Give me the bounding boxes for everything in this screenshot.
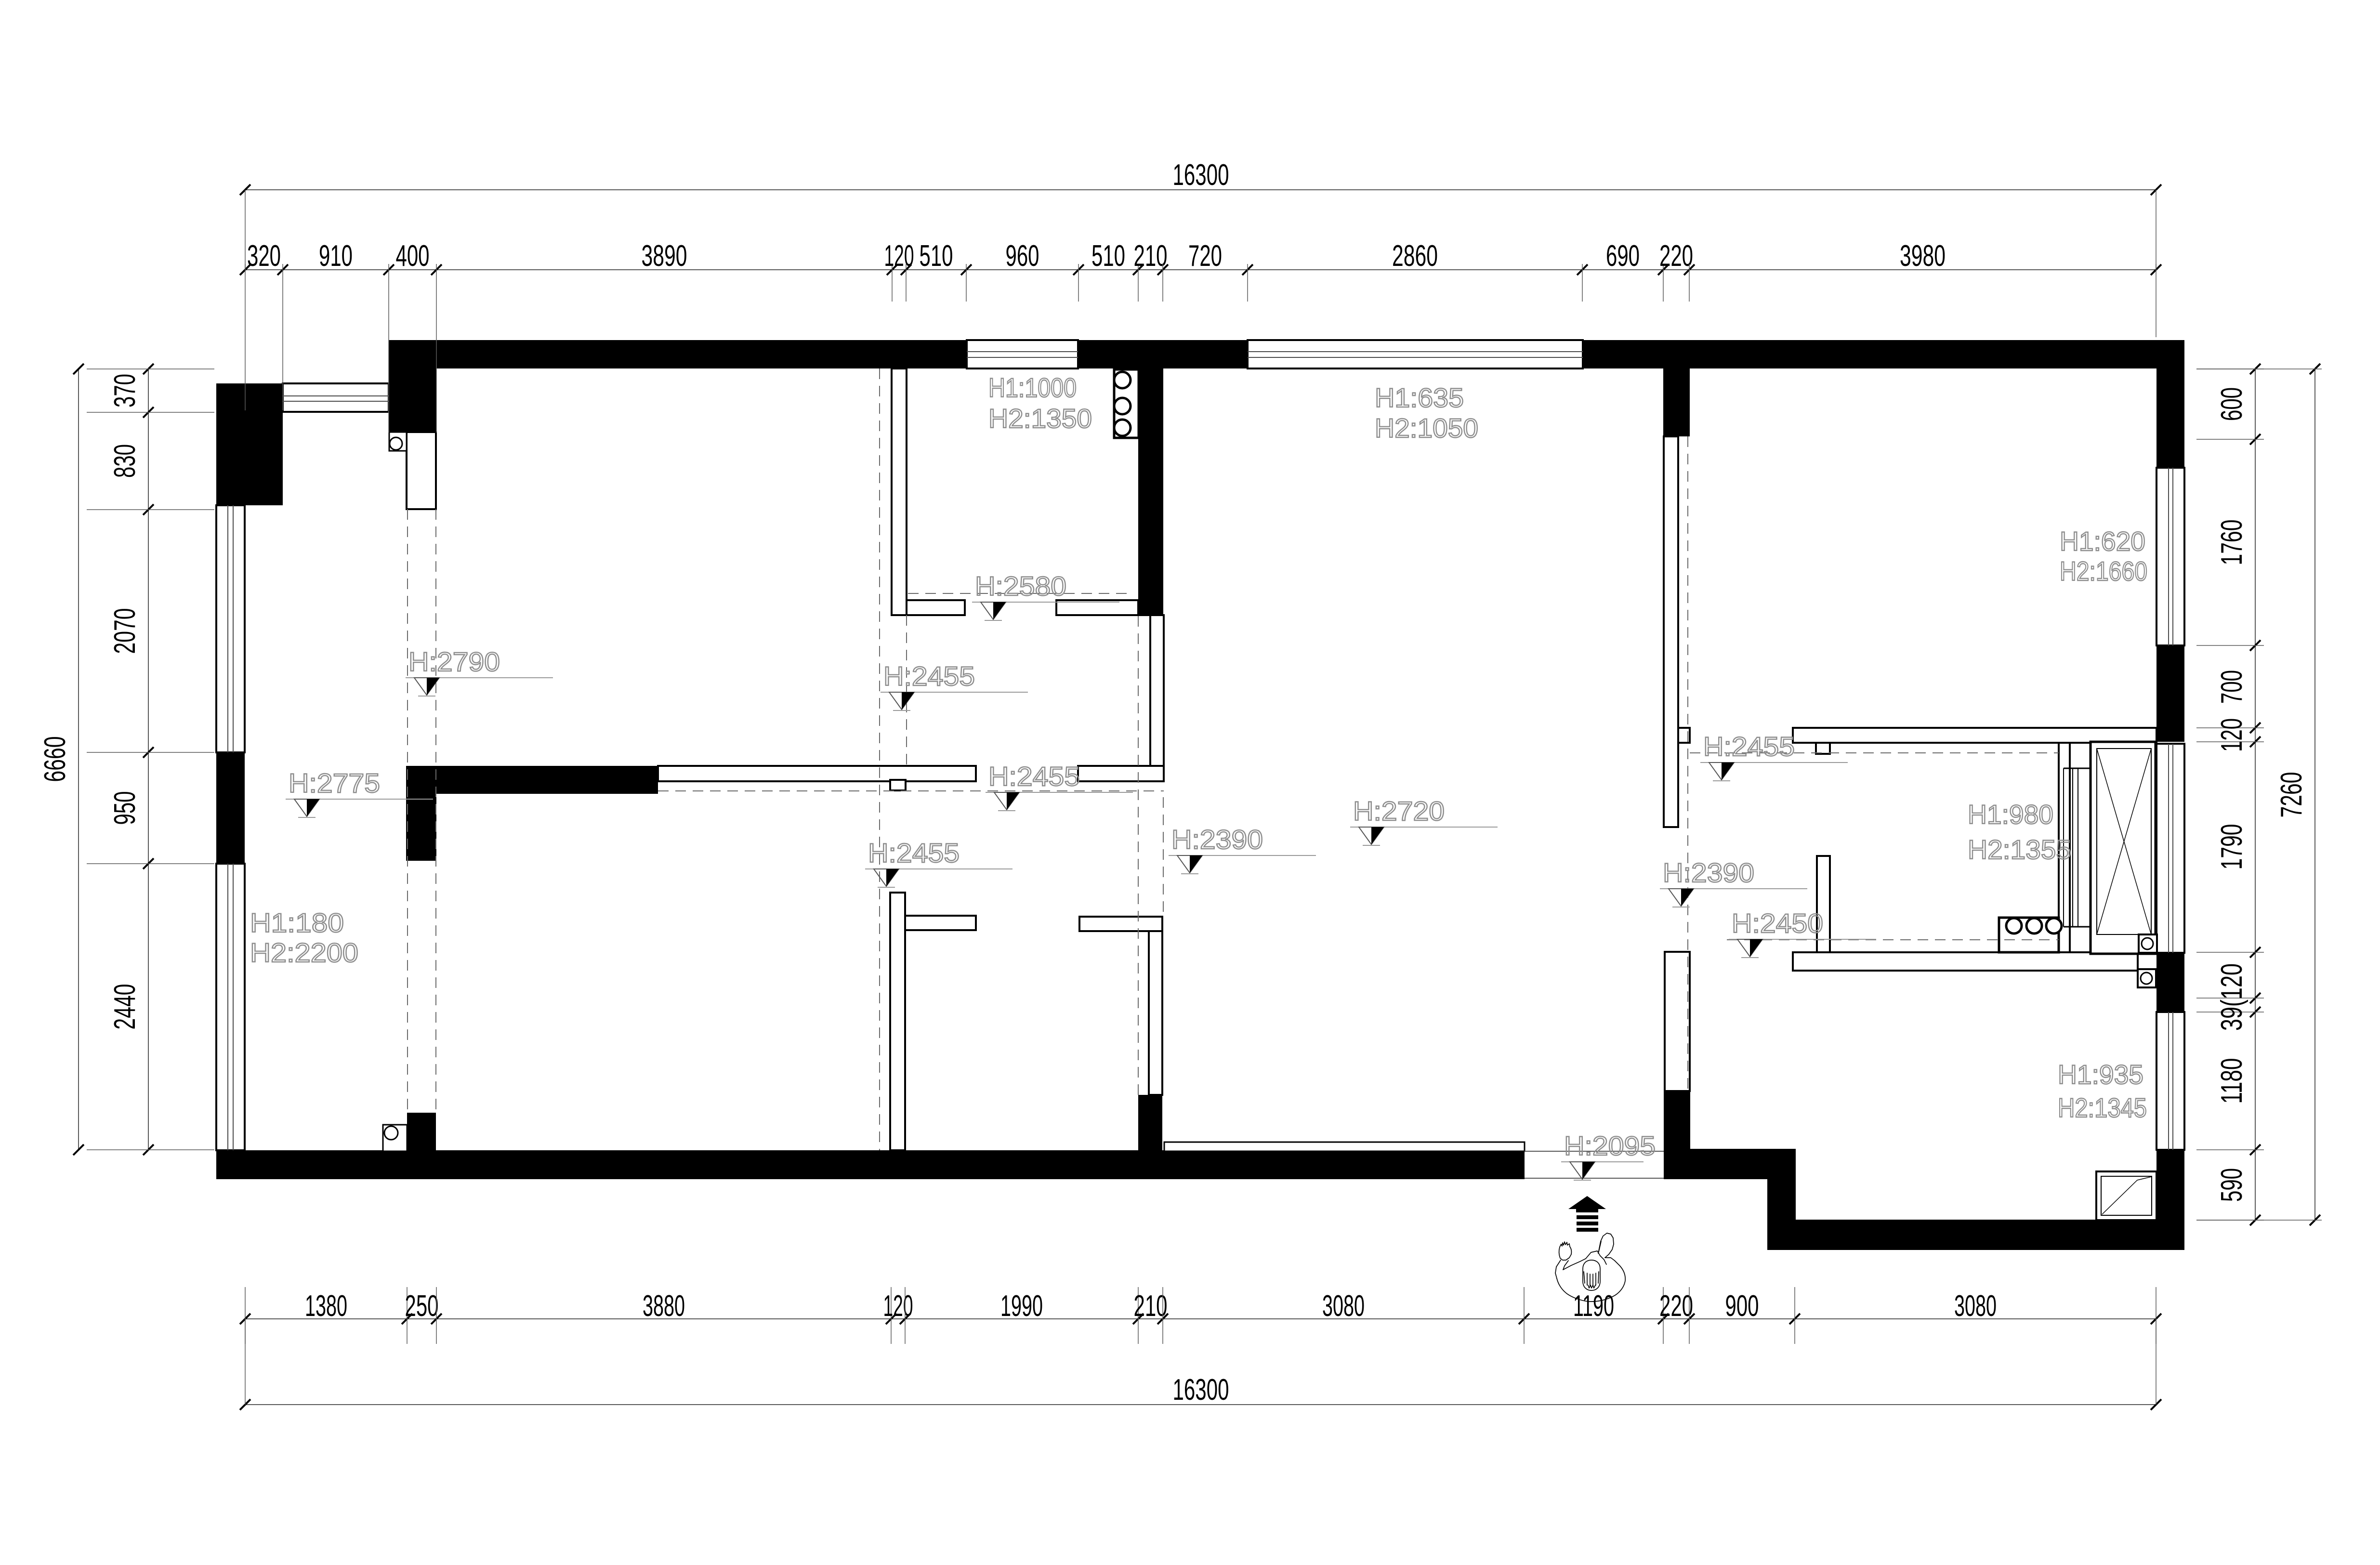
svg-text:H1:980: H1:980: [1968, 799, 2053, 829]
svg-text:1990: 1990: [1000, 1289, 1043, 1323]
svg-text:1760: 1760: [2215, 520, 2249, 566]
svg-text:H:2790: H:2790: [408, 646, 500, 677]
svg-text:H2:1350: H2:1350: [988, 403, 1092, 434]
svg-text:3080: 3080: [1954, 1289, 1997, 1323]
svg-text:910: 910: [319, 239, 353, 273]
svg-text:H:2095: H:2095: [1564, 1131, 1656, 1161]
svg-text:210: 210: [1134, 1289, 1168, 1323]
svg-text:370: 370: [108, 374, 142, 408]
svg-text:220: 220: [1659, 1289, 1693, 1323]
svg-text:H1:180: H1:180: [250, 907, 344, 938]
svg-text:690: 690: [1606, 239, 1640, 273]
svg-text:400: 400: [396, 239, 430, 273]
svg-text:H:2580: H:2580: [975, 571, 1066, 601]
svg-text:H2:1660: H2:1660: [2060, 556, 2147, 586]
svg-text:H:2390: H:2390: [1663, 857, 1754, 888]
svg-text:720: 720: [1188, 239, 1222, 273]
svg-text:3880: 3880: [643, 1289, 685, 1323]
svg-text:6660: 6660: [39, 736, 72, 782]
svg-text:950: 950: [108, 791, 142, 825]
svg-text:H:2390: H:2390: [1171, 824, 1263, 855]
svg-text:2860: 2860: [1392, 239, 1438, 273]
svg-text:120: 120: [2215, 718, 2249, 752]
svg-text:510: 510: [920, 239, 953, 273]
svg-text:39(120: 39(120: [2215, 963, 2249, 1031]
svg-text:700: 700: [2215, 670, 2249, 704]
svg-text:H2:1355: H2:1355: [1968, 834, 2071, 865]
svg-text:1380: 1380: [305, 1289, 347, 1323]
svg-text:H:2455: H:2455: [883, 661, 975, 691]
svg-text:600: 600: [2215, 387, 2249, 421]
svg-text:H1:1000: H1:1000: [988, 372, 1077, 403]
svg-text:H1:935: H1:935: [2058, 1059, 2143, 1090]
svg-text:1790: 1790: [2215, 824, 2249, 870]
svg-text:H2:1050: H2:1050: [1375, 413, 1478, 443]
svg-text:16300: 16300: [1173, 1373, 1229, 1407]
svg-text:3080: 3080: [1322, 1289, 1365, 1323]
svg-text:960: 960: [1006, 239, 1039, 273]
svg-text:7260: 7260: [2275, 772, 2308, 818]
svg-text:H:2455: H:2455: [868, 838, 960, 868]
svg-text:120: 120: [884, 239, 914, 273]
svg-text:H1:635: H1:635: [1375, 382, 1464, 413]
svg-text:H:2455: H:2455: [988, 761, 1080, 791]
svg-text:2070: 2070: [108, 608, 142, 654]
svg-text:220: 220: [1659, 239, 1693, 273]
svg-text:320: 320: [247, 239, 281, 273]
svg-text:590: 590: [2215, 1168, 2249, 1202]
svg-text:510: 510: [1091, 239, 1125, 273]
svg-text:H1:620: H1:620: [2060, 526, 2145, 556]
svg-text:16300: 16300: [1173, 158, 1229, 192]
svg-text:H2:2200: H2:2200: [250, 937, 358, 968]
svg-text:3890: 3890: [642, 239, 687, 273]
svg-text:1180: 1180: [2215, 1058, 2249, 1104]
svg-text:3980: 3980: [1900, 239, 1946, 273]
svg-text:H:2450: H:2450: [1732, 908, 1823, 938]
svg-text:H2:1345: H2:1345: [2058, 1092, 2147, 1123]
svg-text:H:2455: H:2455: [1703, 731, 1795, 762]
svg-text:830: 830: [108, 444, 142, 478]
svg-text:2440: 2440: [108, 984, 142, 1030]
svg-text:210: 210: [1134, 239, 1168, 273]
svg-text:1190: 1190: [1573, 1289, 1614, 1323]
svg-text:250: 250: [405, 1289, 439, 1323]
svg-text:120: 120: [883, 1289, 913, 1323]
svg-text:H:2775: H:2775: [289, 768, 380, 798]
svg-text:H:2720: H:2720: [1353, 796, 1445, 826]
svg-text:900: 900: [1725, 1289, 1759, 1323]
